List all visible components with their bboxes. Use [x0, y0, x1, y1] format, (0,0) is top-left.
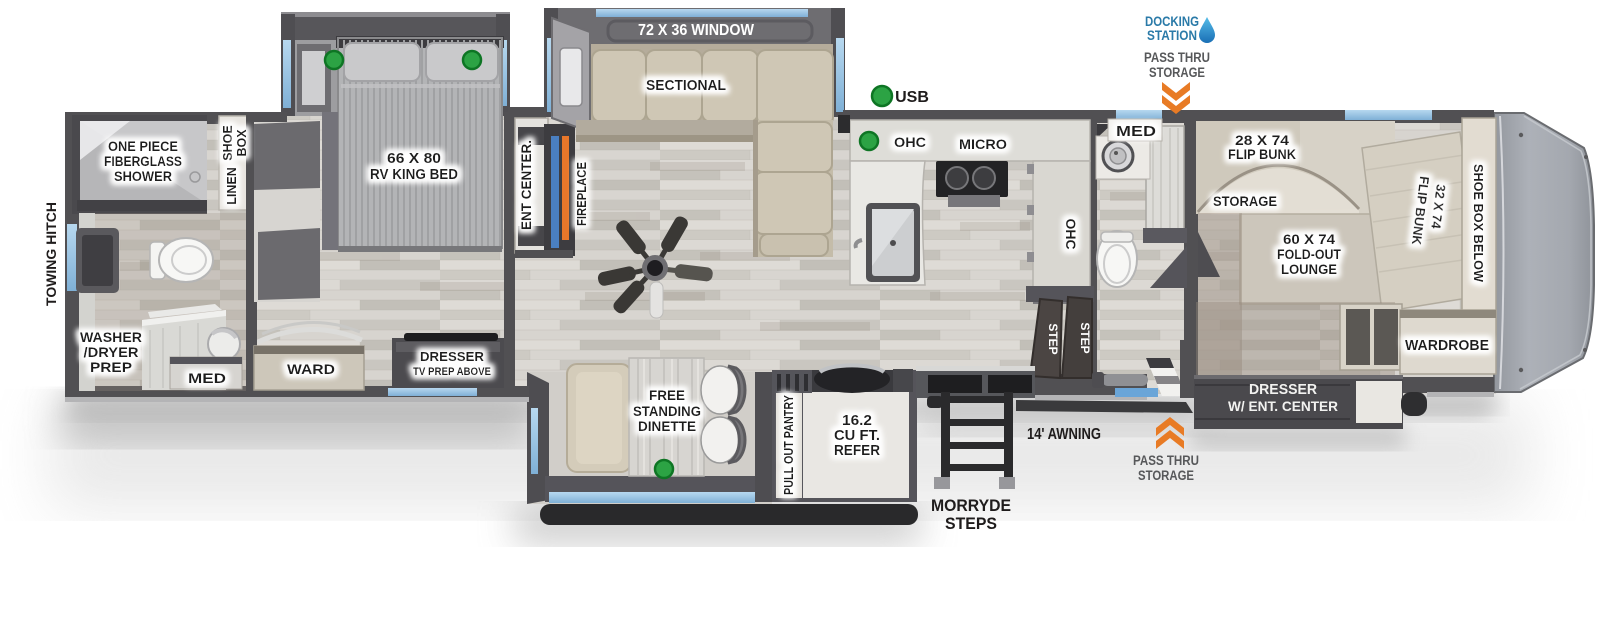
svg-text:ONE PIECE: ONE PIECE	[108, 139, 178, 154]
svg-text:DRESSER: DRESSER	[1249, 381, 1317, 398]
svg-text:66 X 80: 66 X 80	[387, 151, 441, 167]
svg-text:TV PREP ABOVE: TV PREP ABOVE	[413, 366, 491, 378]
svg-text:STORAGE: STORAGE	[1213, 193, 1277, 209]
svg-text:TOWING HITCH: TOWING HITCH	[43, 202, 59, 306]
svg-text:LINEN: LINEN	[225, 167, 239, 205]
svg-text:SECTIONAL: SECTIONAL	[646, 77, 726, 94]
svg-text:PASS THRU: PASS THRU	[1133, 453, 1199, 468]
svg-text:RV KING BED: RV KING BED	[370, 167, 458, 183]
svg-text:STEPS: STEPS	[945, 515, 997, 533]
svg-text:WARD: WARD	[287, 361, 335, 377]
svg-text:FREE: FREE	[649, 387, 685, 403]
svg-text:REFER: REFER	[834, 442, 880, 459]
svg-text:LOUNGE: LOUNGE	[1281, 261, 1337, 277]
svg-text:STEP: STEP	[1046, 323, 1060, 354]
svg-text:MED: MED	[188, 370, 226, 386]
svg-text:STORAGE: STORAGE	[1138, 468, 1194, 483]
svg-text:/DRYER: /DRYER	[84, 344, 139, 360]
svg-text:STANDING: STANDING	[633, 403, 701, 419]
svg-text:72 X 36 WINDOW: 72 X 36 WINDOW	[638, 22, 754, 39]
svg-text:PULL OUT PANTRY: PULL OUT PANTRY	[782, 394, 796, 495]
svg-text:PASS THRU: PASS THRU	[1144, 50, 1210, 65]
svg-text:STORAGE: STORAGE	[1149, 65, 1205, 80]
svg-text:SHOWER: SHOWER	[114, 169, 172, 184]
svg-text:FOLD-OUT: FOLD-OUT	[1277, 246, 1341, 262]
svg-text:14' AWNING: 14' AWNING	[1027, 426, 1101, 443]
svg-text:PREP: PREP	[90, 359, 132, 375]
svg-text:W/ ENT. CENTER: W/ ENT. CENTER	[1228, 398, 1338, 414]
svg-text:ENT CENTER.: ENT CENTER.	[519, 140, 534, 230]
svg-text:DINETTE: DINETTE	[638, 418, 696, 434]
svg-text:FLIP BUNK: FLIP BUNK	[1228, 146, 1296, 162]
svg-text:WARDROBE: WARDROBE	[1405, 337, 1489, 354]
svg-text:STATION: STATION	[1147, 28, 1197, 43]
svg-text:SHOE BOX BELOW: SHOE BOX BELOW	[1471, 164, 1486, 283]
svg-text:FIBERGLASS: FIBERGLASS	[104, 154, 182, 169]
svg-text:MICRO: MICRO	[959, 136, 1007, 152]
svg-text:STEP: STEP	[1078, 322, 1092, 353]
svg-text:MORRYDE: MORRYDE	[931, 497, 1011, 515]
svg-text:OHC: OHC	[1063, 218, 1079, 249]
svg-text:USB: USB	[895, 89, 929, 106]
svg-text:OHC: OHC	[894, 134, 926, 150]
svg-text:MED: MED	[1116, 123, 1156, 140]
svg-text:FIREPLACE: FIREPLACE	[575, 162, 589, 226]
svg-text:DRESSER: DRESSER	[420, 349, 485, 364]
svg-text:DOCKING: DOCKING	[1145, 14, 1199, 29]
svg-text:60 X 74: 60 X 74	[1283, 231, 1335, 247]
svg-text:WASHER: WASHER	[80, 329, 142, 345]
svg-text:SHOE: SHOE	[221, 125, 235, 160]
svg-text:BOX: BOX	[235, 129, 249, 157]
